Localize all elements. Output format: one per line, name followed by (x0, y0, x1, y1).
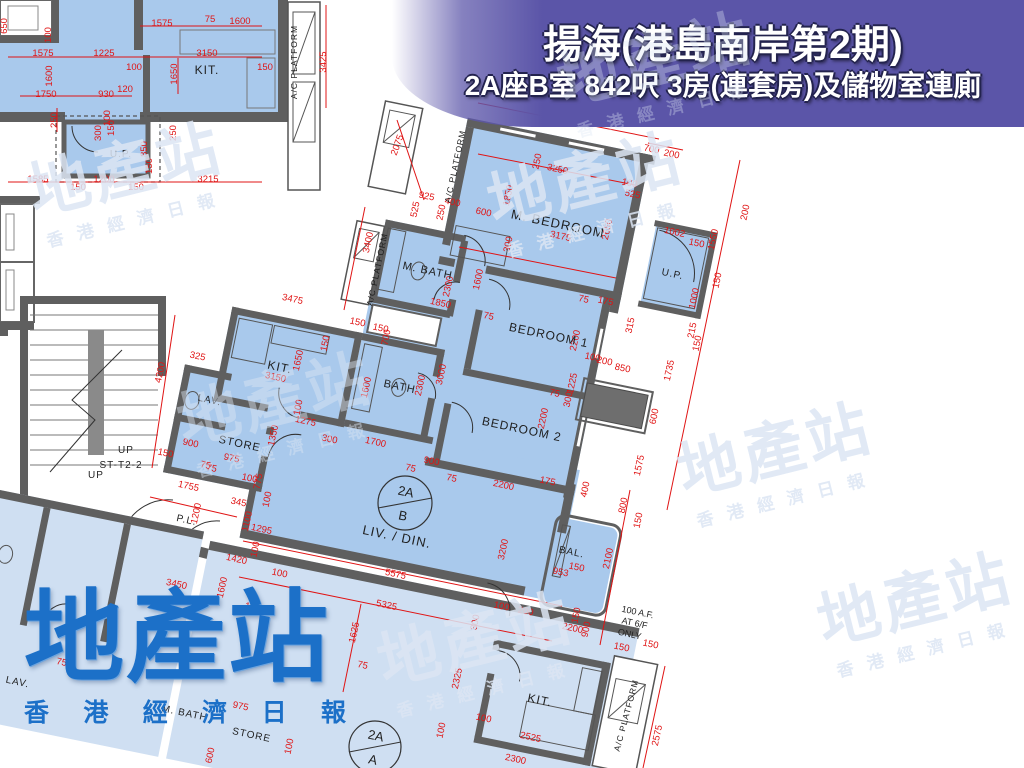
dimension-label: 1600 (229, 16, 250, 27)
dimension-label: 600 (648, 408, 662, 426)
dimension-label: 650 (0, 18, 10, 34)
dimension-label: 850 (139, 141, 150, 157)
page: 1575751600650100157512251003150150165016… (0, 0, 1024, 768)
dimension-label: 925 (418, 190, 436, 204)
page-title: 揚海(港島南岸第2期) (543, 24, 903, 69)
dimension-label: 1225 (93, 48, 114, 59)
dimension-label: 3475 (281, 292, 304, 307)
page-subtitle: 2A座B室 842呎 3房(連套房)及儲物室連廁 (465, 69, 982, 103)
dimension-label: 3425 (318, 51, 329, 72)
dimension-label: 850 (614, 362, 632, 376)
dimension-label: 300 (93, 125, 104, 141)
dimension-label: 75 (482, 310, 495, 323)
dimension-label: 1585 (27, 174, 48, 185)
dimension-label: 1755 (177, 479, 200, 494)
dimension-label: 325 (189, 350, 207, 364)
dimension-label: 800 (617, 497, 631, 515)
dimension-label: 3215 (197, 174, 218, 185)
dimension-label: 345 (230, 496, 248, 510)
dimension-label: 150 (144, 158, 155, 174)
dimension-label: 930 (98, 89, 114, 100)
dimension-label: 150 (257, 62, 273, 73)
dimension-label: 75 (548, 387, 561, 400)
dimension-label: 75 (205, 14, 216, 25)
dimension-label: 75 (445, 472, 458, 485)
dimension-label: 1750 (35, 89, 56, 100)
dimension-label: 1735 (662, 359, 677, 382)
dimension-label: 150 (106, 120, 117, 136)
dimension-label: 3150 (196, 48, 217, 59)
room-label: A/C PLATFORM (289, 25, 299, 99)
dimension-label: 150 (128, 182, 144, 193)
room-label: UP (88, 470, 104, 481)
dimension-label: 1575 (32, 48, 53, 59)
dimension-label: 250 (435, 204, 449, 222)
dimension-label: 250 (49, 112, 60, 128)
dimension-label: 120 (117, 84, 133, 95)
header-banner: 揚海(港島南岸第2期) 2A座B室 842呎 3房(連套房)及儲物室連廁 (392, 0, 1024, 127)
dimension-label: 250 (168, 125, 179, 141)
dimension-label: 150 (157, 447, 175, 461)
dimension-label: 525 (409, 201, 423, 219)
dimension-label: 400 (579, 481, 593, 499)
dimension-label: 4200 (153, 361, 168, 384)
dimension-label: 150 (70, 182, 86, 193)
dimension-label: 75 (205, 462, 218, 475)
dimension-label: 315 (624, 317, 638, 335)
room-label: UP (118, 445, 134, 456)
dimension-label: 1575 (151, 18, 172, 29)
dimension-label: 150 (711, 272, 725, 290)
dimension-label: 100 (43, 27, 54, 43)
dimension-label: 100 (126, 62, 142, 73)
room-label: KIT. (195, 63, 220, 77)
dimension-label: 150 (632, 512, 646, 530)
dimension-label: 1600 (44, 65, 55, 86)
dimension-label: 1200 (93, 174, 114, 185)
dimension-label: 200 (663, 148, 681, 162)
room-label: U.P. (110, 149, 132, 160)
dimension-label: 75 (356, 659, 369, 672)
dimension-label: 75 (577, 293, 590, 306)
dimension-label: 150 (691, 335, 705, 353)
dimension-label: 1650 (169, 63, 180, 84)
dimension-label: 200 (739, 204, 753, 222)
dimension-label: 150 (642, 638, 660, 652)
room-label: ST-T2-2 (99, 460, 142, 471)
dimension-label: 75 (55, 656, 68, 669)
dimension-label: 150 (349, 316, 367, 330)
dimension-label: 200 (596, 355, 614, 369)
dimension-label: 75 (404, 462, 417, 475)
dimension-label: 1575 (632, 454, 647, 477)
